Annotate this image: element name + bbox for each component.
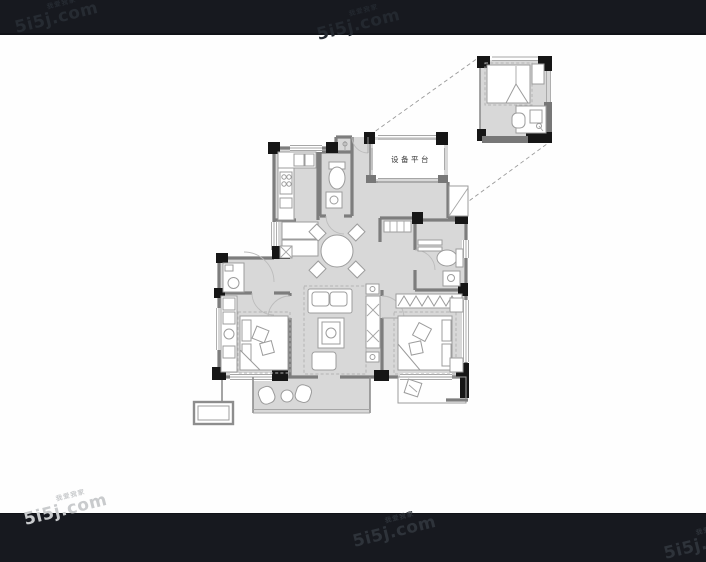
ac-box (194, 380, 233, 424)
bathroom-sink (326, 192, 342, 208)
toilet (437, 250, 457, 266)
equipment-platform: 设备平台 (391, 154, 431, 164)
side-table (366, 284, 379, 294)
bathroom-sink (443, 271, 460, 286)
nightstand (450, 358, 463, 372)
toilet-tank (456, 249, 463, 267)
towel-shelf (418, 240, 442, 245)
floor-plan: 设备平台 (0, 0, 706, 562)
tv-cabinet (366, 296, 380, 348)
nightstand (450, 298, 463, 312)
top-letterbox-bar (0, 0, 706, 35)
bed-cushion (260, 341, 275, 356)
shoe-cabinet (384, 221, 411, 232)
laundry-area (223, 263, 244, 292)
floorplan-page: 我爱我家 5i5j.com 我爱我家 5i5j.com 我爱我家 5i5j.co… (0, 0, 706, 562)
side-table (366, 352, 379, 362)
dining-table (321, 235, 353, 267)
bed-cushion (409, 341, 423, 355)
equipment-platform-label: 设备平台 (391, 154, 431, 164)
balcony-table (281, 390, 293, 402)
study-desk (512, 106, 546, 133)
bottom-letterbox-bar (0, 513, 706, 562)
toilet (329, 167, 345, 189)
ac-platform (449, 186, 468, 216)
armchair (312, 352, 336, 370)
